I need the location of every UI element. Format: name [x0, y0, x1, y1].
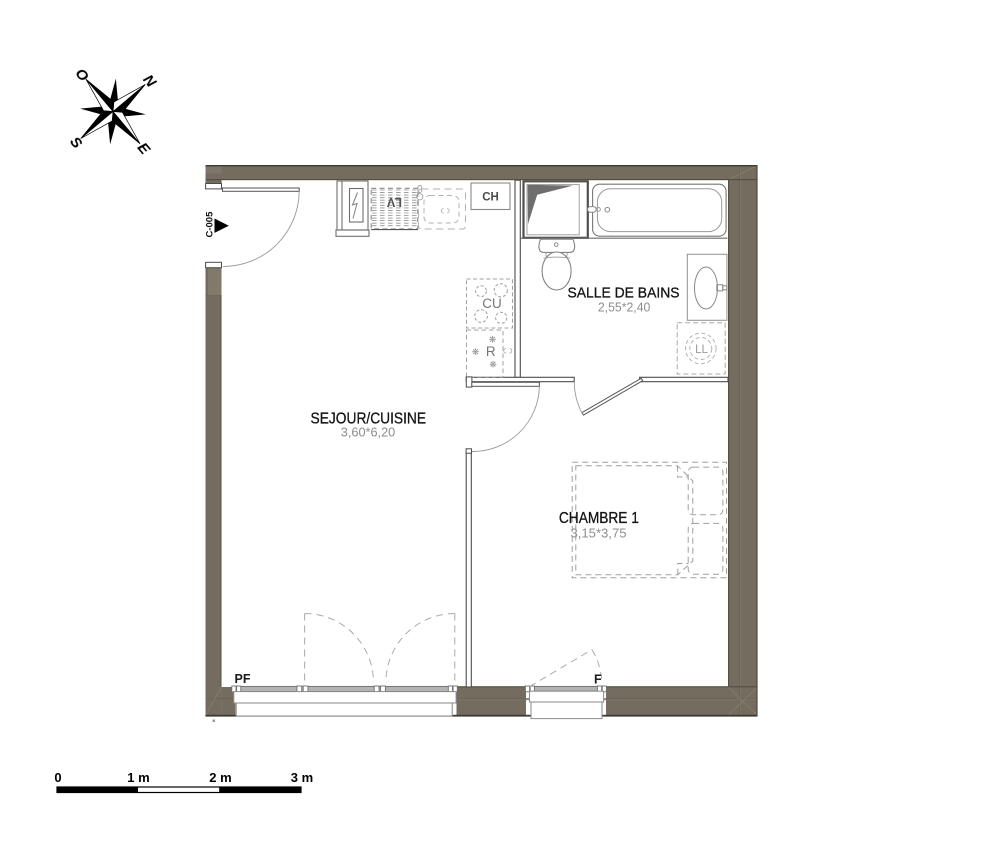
svg-text:CU: CU [482, 296, 502, 311]
svg-text:3 m: 3 m [291, 770, 313, 785]
svg-text:❋: ❋ [472, 347, 480, 357]
svg-text:LL: LL [695, 344, 708, 356]
svg-text:❋: ❋ [489, 359, 497, 369]
svg-text:R: R [486, 344, 496, 359]
svg-text:CHAMBRE 1: CHAMBRE 1 [559, 510, 639, 527]
svg-text:1 m: 1 m [127, 770, 149, 785]
svg-text:3,60*6,20: 3,60*6,20 [341, 424, 396, 439]
svg-text:2,55*2,40: 2,55*2,40 [598, 299, 651, 314]
svg-text:0: 0 [54, 770, 61, 785]
svg-text:CH: CH [482, 191, 499, 203]
svg-text:PF: PF [234, 672, 250, 686]
svg-text:C-005: C-005 [205, 211, 216, 238]
svg-text:LV: LV [386, 195, 402, 209]
svg-text:2 m: 2 m [209, 770, 231, 785]
svg-text:3,15*3,75: 3,15*3,75 [570, 525, 626, 540]
svg-text:F: F [594, 673, 602, 687]
svg-text:❋: ❋ [489, 334, 497, 344]
